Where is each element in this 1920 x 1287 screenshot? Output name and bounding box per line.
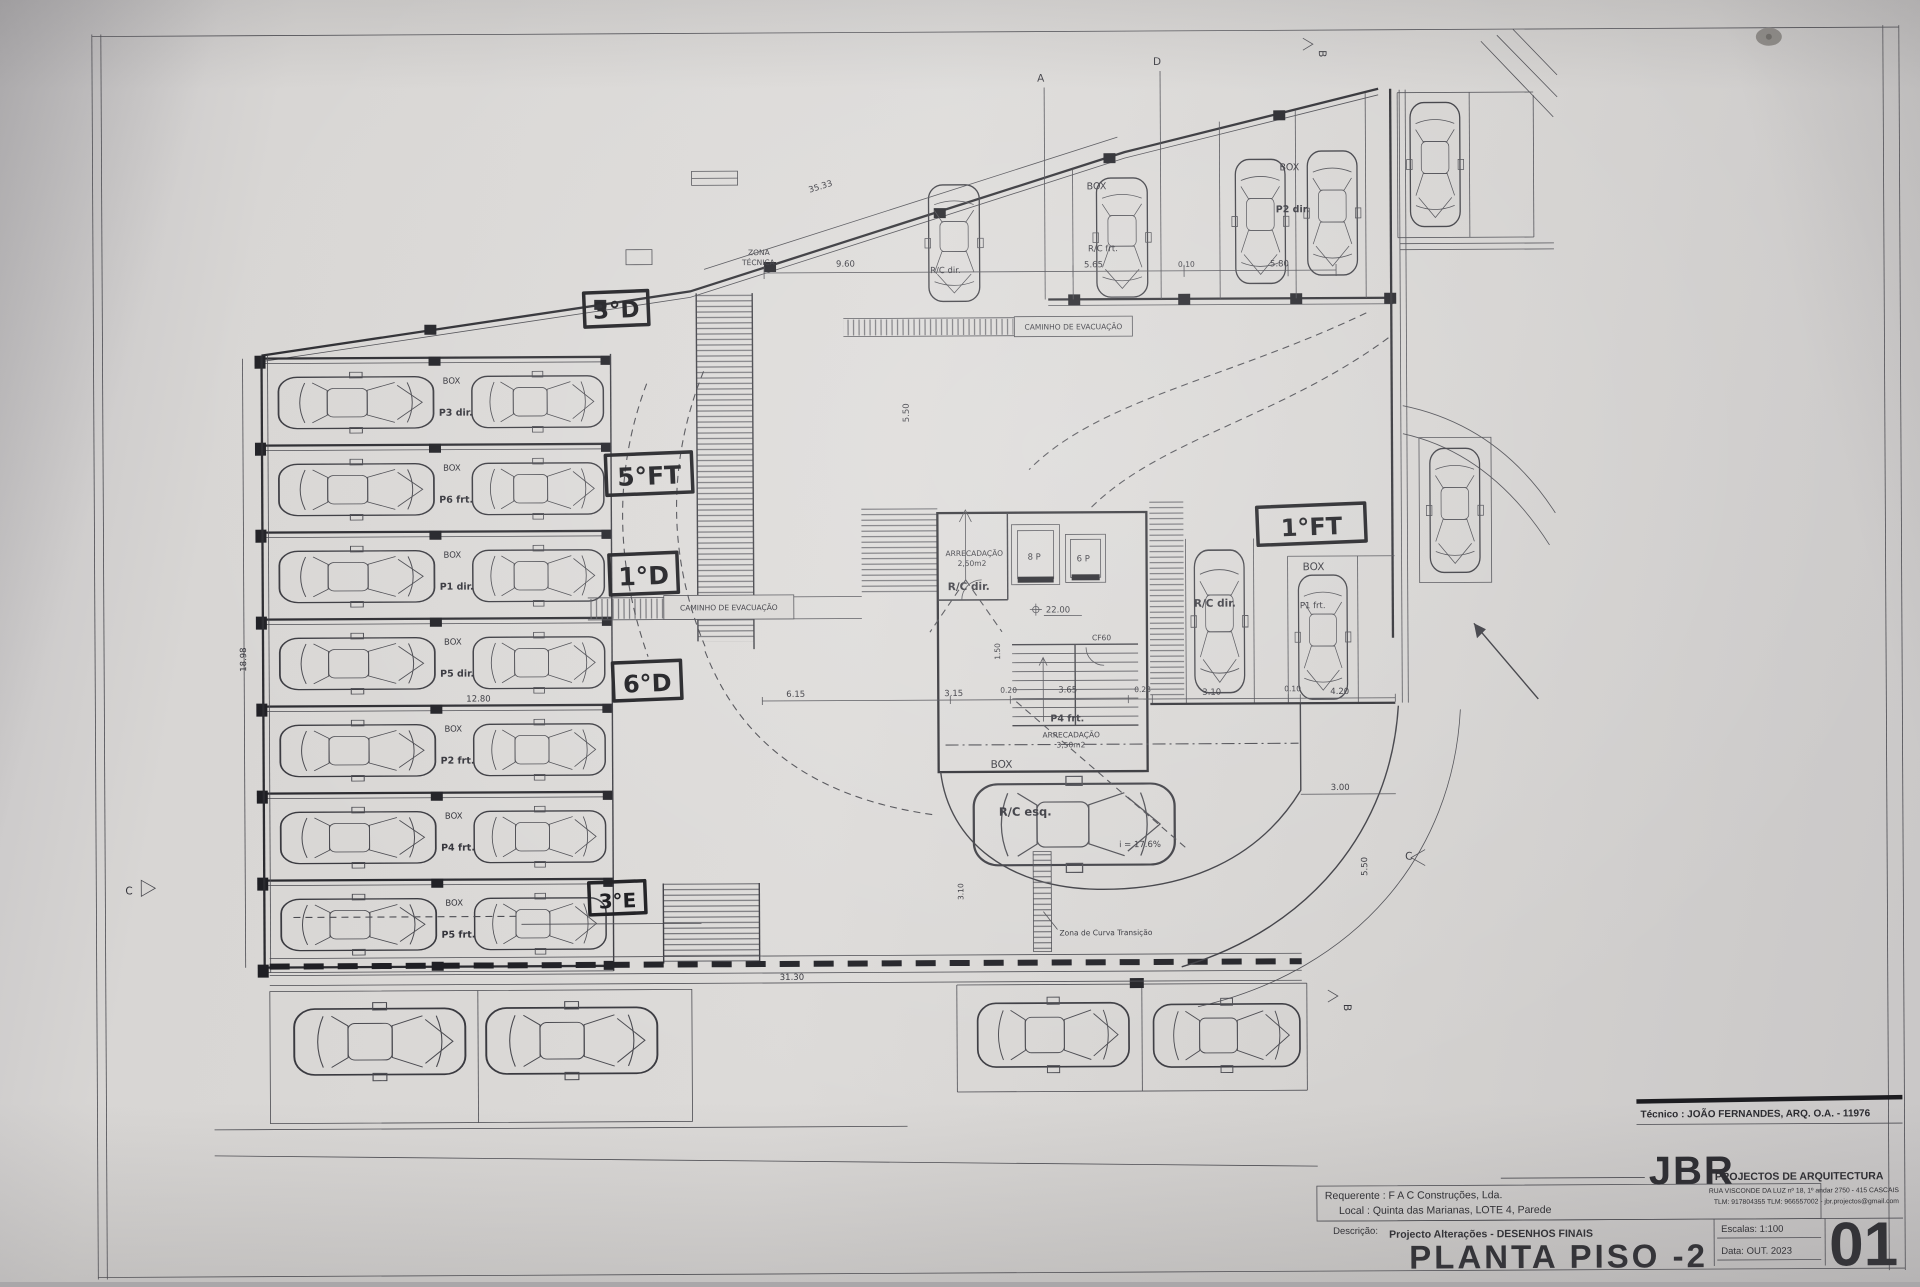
- evacuation-corridor-top: CAMINHO DE EVACUAÇÃO: [843, 316, 1132, 338]
- lower-garage-middle: [957, 977, 1308, 1092]
- building-core: ARRECADAÇÃO 2,50m2 R/C dir. 8 P 6 P 22.0…: [937, 512, 1147, 772]
- p2-dir-label: P2 dir.: [1276, 204, 1310, 215]
- stall-label: P2 frt.: [441, 756, 475, 767]
- parking-row: BOX P2 frt.: [256, 702, 612, 782]
- stall-label: P1 dir.: [440, 582, 474, 593]
- title-block: Técnico : JOÃO FERNANDES, ARQ. O.A. - 11…: [1316, 1097, 1903, 1282]
- box-label: BOX: [443, 377, 461, 387]
- dim: 0.23: [1134, 685, 1151, 694]
- dim: 5.50: [1360, 857, 1370, 876]
- curve-zone-label: Zona de Curva Transição: [1060, 928, 1153, 937]
- dim: 5.50: [902, 403, 912, 422]
- marker-c-right: C: [1405, 851, 1412, 863]
- box-label: BOX: [445, 812, 463, 822]
- rc-dir-stall-label: R/C dir.: [930, 266, 961, 276]
- svg-text:TÉCNICA: TÉCNICA: [741, 258, 776, 267]
- left-block-structure: 18.98 12.80: [237, 353, 701, 977]
- box-label: BOX: [445, 899, 463, 909]
- dim: 1.50: [993, 643, 1002, 660]
- marker-d: D: [1153, 56, 1161, 68]
- dim: 3.15: [944, 689, 963, 699]
- floor-plan-drawing: BOX P3 dir. BOX P6 frt. BOX P1 dir. BOX …: [0, 0, 1920, 1287]
- p4-frt-label: P4 frt.: [1050, 713, 1084, 724]
- dim: 5.80: [1270, 259, 1289, 269]
- dim-top-slant: 35.33: [808, 179, 834, 196]
- dim: 0.10: [1284, 684, 1301, 693]
- rc-dir-car-label: R/C dir.: [1194, 598, 1236, 610]
- caminho-evacuacao-label: CAMINHO DE EVACUAÇÃO: [680, 603, 778, 613]
- marker-c-left: C: [125, 885, 132, 897]
- p1-frt-label: P1 frt.: [1300, 601, 1326, 611]
- svg-text:6°D: 6°D: [622, 669, 672, 699]
- dim-left-height: 18.98: [239, 647, 249, 671]
- dim: 0.10: [1178, 260, 1195, 269]
- dim-top-mid: 9.60: [836, 260, 855, 270]
- parking-row: BOX P3 dir.: [254, 354, 610, 434]
- plan-top-boundary: [260, 89, 1379, 362]
- rc-dir-storage-label: R/C dir.: [948, 581, 990, 593]
- dim: 3.10: [956, 883, 965, 900]
- rc-esq-stall: BOX R/C esq.: [940, 703, 1396, 890]
- lift-8p-label: 8 P: [1028, 553, 1041, 563]
- right-courtyard: [1397, 29, 1561, 703]
- level-marker: 22.00: [1046, 605, 1070, 615]
- firm-name: PROJECTOS DE ARQUITECTURA: [1715, 1170, 1884, 1183]
- local-line: Local : Quinta das Marianas, LOTE 4, Par…: [1339, 1204, 1552, 1217]
- parking-row: BOX P4 frt.: [257, 789, 613, 869]
- dim-rows-width: 12.80: [466, 694, 490, 704]
- svg-text:3°E: 3°E: [598, 888, 637, 913]
- stall-label: P4 frt.: [441, 843, 475, 854]
- svg-text:3°D: 3°D: [593, 297, 641, 325]
- sheet-number: 01: [1829, 1210, 1898, 1279]
- parking-row: BOX P5 dir.: [256, 615, 612, 695]
- firm-address: RUA VISCONDE DA LUZ nº 18, 1º andar 2750…: [1709, 1187, 1900, 1195]
- marker-b-bottom: B: [1341, 1004, 1353, 1011]
- dimensions: 35.33 9.60 5.65 0.10 5.80 5.50 6.15 3.15…: [265, 136, 1396, 986]
- requerente-line: Requerente : F A C Construções, Lda.: [1325, 1189, 1502, 1202]
- ramp-hatching: [660, 291, 1186, 964]
- handwritten-note: 3°E: [589, 881, 646, 915]
- stall-label: P6 frt.: [439, 495, 473, 506]
- right-parking-area: R/C dir. BOX P1 frt.: [1185, 538, 1395, 704]
- parking-row: BOX P6 frt.: [255, 441, 611, 521]
- caminho-evacuacao-label: CAMINHO DE EVACUAÇÃO: [1024, 322, 1122, 332]
- handwritten-note: 1°FT: [1257, 503, 1366, 545]
- section-markers: A D B C C B: [121, 38, 1426, 1018]
- dim: 0.20: [1000, 686, 1017, 695]
- dim: 6.15: [786, 690, 805, 700]
- stall-label: P5 frt.: [442, 930, 476, 941]
- escalas-line: Escalas: 1:100: [1721, 1224, 1783, 1235]
- door-cf60-label: CF60: [1092, 633, 1111, 642]
- marker-b-top: B: [1316, 50, 1328, 57]
- box-label: BOX: [444, 551, 462, 561]
- rc-frt-label: R/C frt.: [1088, 244, 1118, 254]
- handwritten-note: 3°D: [584, 291, 649, 328]
- box-label: BOX: [991, 759, 1013, 771]
- svg-text:1°D: 1°D: [618, 561, 670, 592]
- dim: 5.65: [1084, 260, 1103, 270]
- box-label: BOX: [1279, 162, 1299, 173]
- tecnico-line: Técnico : JOÃO FERNANDES, ARQ. O.A. - 11…: [1640, 1106, 1870, 1120]
- box-label: BOX: [444, 725, 462, 735]
- arrecadacao-area: 2,50m2: [958, 559, 987, 568]
- data-line: Data: OUT. 2023: [1721, 1246, 1792, 1257]
- box-label: BOX: [1303, 561, 1325, 573]
- box-label: BOX: [444, 638, 462, 648]
- photographed-drawing-sheet: BOX P3 dir. BOX P6 frt. BOX P1 dir. BOX …: [0, 0, 1920, 1282]
- dim: 3.00: [1331, 783, 1350, 793]
- dim: 3.65: [1058, 685, 1077, 695]
- handwritten-note: 1°D: [609, 552, 679, 595]
- bottom-sheet-lines: [215, 1124, 1318, 1172]
- rc-esq-label: R/C esq.: [999, 805, 1052, 819]
- evacuation-corridor-center: CAMINHO DE EVACUAÇÃO: [588, 595, 862, 620]
- binder-hole-mark: [1756, 28, 1782, 46]
- descricao-label: Descrição:: [1333, 1226, 1378, 1237]
- svg-text:1°FT: 1°FT: [1280, 512, 1343, 542]
- dim: 4.20: [1330, 687, 1349, 697]
- handwritten-note: 6°D: [612, 660, 681, 701]
- box-label: BOX: [443, 464, 461, 474]
- drawing-title: PLANTA PISO -2: [1409, 1237, 1708, 1276]
- stall-label: P5 dir.: [440, 669, 474, 680]
- arrecadacao-label: ARRECADAÇÃO: [946, 549, 1004, 558]
- stall-label: P3 dir.: [439, 408, 473, 419]
- arrecadacao-label: ARRECADAÇÃO: [1042, 730, 1100, 739]
- parking-row: BOX P1 dir.: [255, 528, 611, 608]
- dim-bottom-run: 31.30: [780, 973, 804, 983]
- parking-row: BOX P5 frt.: [257, 876, 613, 956]
- box-label: BOX: [1087, 181, 1107, 192]
- lower-garage-left: [270, 989, 693, 1123]
- lift-6p-label: 6 P: [1077, 554, 1090, 564]
- dim: 3.10: [1202, 688, 1221, 698]
- zona-tecnica: ZONA TÉCNICA: [741, 248, 776, 267]
- marker-a: A: [1037, 73, 1045, 85]
- firm-contacts: TLM: 917804355 TLM: 966557002 - jbr.proj…: [1714, 1198, 1899, 1206]
- ramp-slope-label: i = 17.6%: [1119, 840, 1161, 850]
- svg-text:5°FT: 5°FT: [617, 460, 682, 492]
